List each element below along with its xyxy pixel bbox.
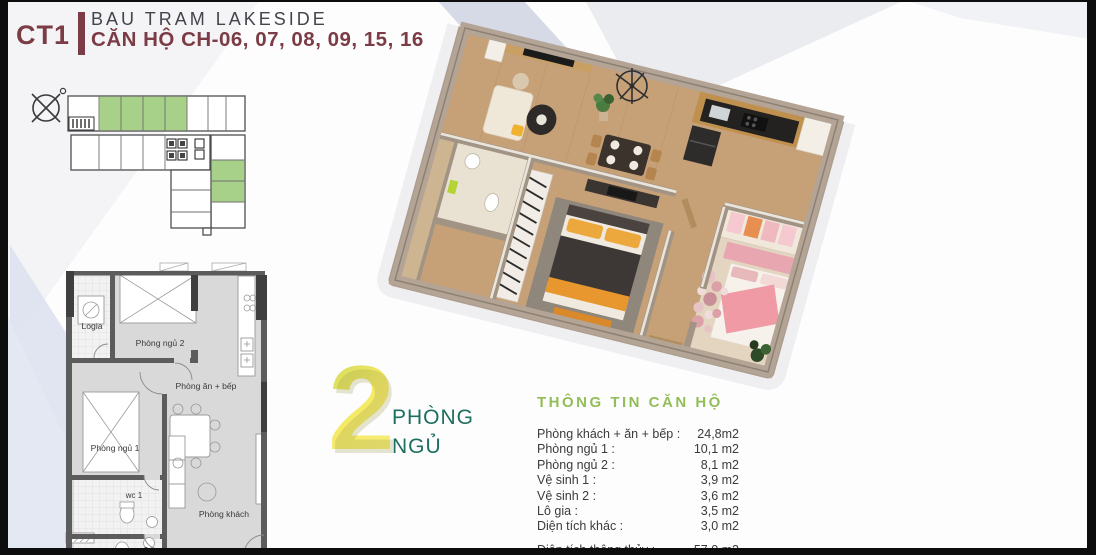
info-row: Vệ sinh 2 : 3,6 m2 xyxy=(537,489,739,504)
info-row: Phòng khách + ăn + bếp : 24,8m2 xyxy=(537,427,739,442)
room-label-logia: Logia xyxy=(81,321,102,331)
info-row: Phòng ngủ 2 : 8,1 m2 xyxy=(537,458,739,473)
frame-bar-right xyxy=(1087,0,1096,555)
info-row-label: Vệ sinh 2 : xyxy=(537,489,596,504)
highlighted-units-top xyxy=(100,97,188,131)
badge-word-1: PHÒNG xyxy=(392,406,474,430)
info-row-value: 3,9 m2 xyxy=(701,473,739,488)
info-row: Phòng ngủ 1 : 10,1 m2 xyxy=(537,442,739,457)
room-label-bedroom2: Phòng ngủ 2 xyxy=(136,338,185,348)
info-panel-title: THÔNG TIN CĂN HỘ xyxy=(537,394,739,411)
info-row: Diện tích khác : 3,0 m2 xyxy=(537,519,739,534)
info-row-label: Diện tích khác : xyxy=(537,519,623,534)
bedroom-count-number: 2 xyxy=(328,348,395,468)
bg-wedge-top-far-right xyxy=(905,0,1096,40)
info-row: Lô gia : 3,5 m2 xyxy=(537,504,739,519)
keyplan-stub xyxy=(203,228,211,235)
frame-bar-top xyxy=(0,0,1096,2)
info-row-value: 3,6 m2 xyxy=(701,489,739,504)
unit-numbers: CĂN HỘ CH-06, 07, 08, 09, 15, 16 xyxy=(91,29,424,52)
info-row-label: Vệ sinh 1 : xyxy=(537,473,596,488)
slide: CT1 BAU TRAM LAKESIDE CĂN HỘ CH-06, 07, … xyxy=(0,0,1096,555)
header-divider-bar xyxy=(78,12,85,55)
room-label-living: Phòng khách xyxy=(199,509,249,519)
info-row-value: 8,1 m2 xyxy=(701,458,739,473)
info-row-label: Phòng ngủ 2 : xyxy=(537,458,615,473)
frame-bar-left xyxy=(0,0,8,555)
keyplan-second-row xyxy=(71,135,210,170)
info-panel: THÔNG TIN CĂN HỘ Phòng khách + ăn + bếp … xyxy=(537,394,739,535)
project-name: BAU TRAM LAKESIDE xyxy=(91,10,424,29)
frame-bar-bottom xyxy=(0,548,1096,555)
bedroom-count-badge: 2 PHÒNG NGỦ xyxy=(328,362,478,462)
highlighted-unit-wing-2 xyxy=(212,181,245,202)
room-label-dining-kitchen: Phòng ăn + bếp xyxy=(176,381,237,391)
keyplan-right-wing-inner xyxy=(171,170,211,228)
room-label-bedroom1: Phòng ngủ 1 xyxy=(91,443,140,453)
info-row-label: Lô gia : xyxy=(537,504,578,519)
info-row-value: 3,5 m2 xyxy=(701,504,739,519)
bg-wedge-top-right xyxy=(585,0,905,118)
stair-core xyxy=(69,117,94,130)
info-row: Vệ sinh 1 : 3,9 m2 xyxy=(537,473,739,488)
floor-plan-2d: Logia Phòng ngủ 2 Phòng ăn + bếp Phòng n… xyxy=(64,262,268,555)
info-row-value: 24,8m2 xyxy=(697,427,739,442)
header-titles: BAU TRAM LAKESIDE CĂN HỘ CH-06, 07, 08, … xyxy=(91,10,424,51)
key-plan xyxy=(60,92,255,240)
block-code: CT1 xyxy=(16,20,70,51)
badge-word-2: NGỦ xyxy=(392,435,474,459)
info-row-value: 10,1 m2 xyxy=(694,442,739,457)
room-label-wc1: wc 1 xyxy=(125,491,143,500)
info-row-label: Phòng khách + ăn + bếp : xyxy=(537,427,680,442)
info-row-value: 3,0 m2 xyxy=(701,519,739,534)
header: CT1 BAU TRAM LAKESIDE CĂN HỘ CH-06, 07, … xyxy=(16,10,424,55)
highlighted-unit-wing-1 xyxy=(212,160,245,181)
info-rows: Phòng khách + ăn + bếp : 24,8m2 Phòng ng… xyxy=(537,427,739,535)
info-row-label: Phòng ngủ 1 : xyxy=(537,442,615,457)
